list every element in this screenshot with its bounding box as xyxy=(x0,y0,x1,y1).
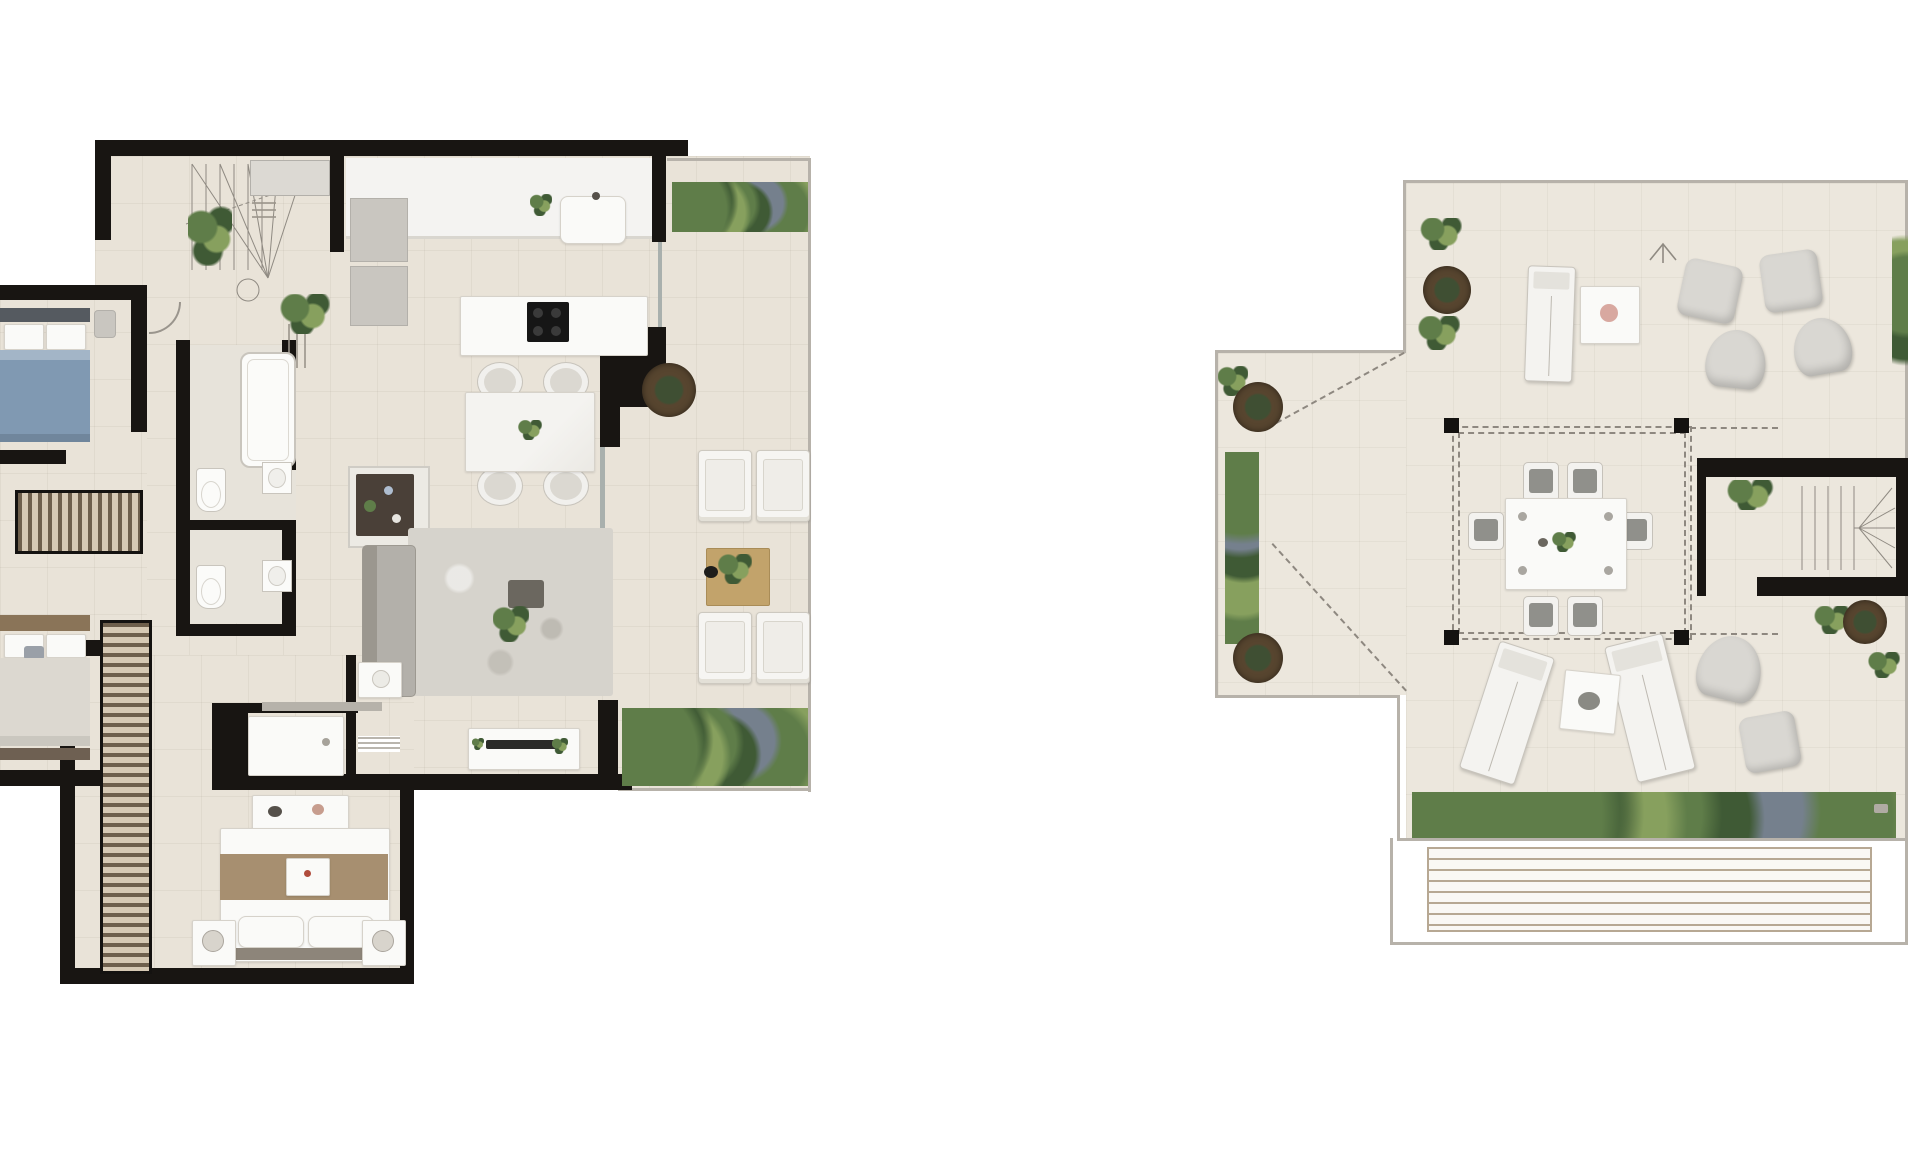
bean-bag-square xyxy=(1676,257,1745,326)
place-setting xyxy=(1604,512,1613,521)
stair-wall-left xyxy=(1697,458,1706,596)
table-decor xyxy=(1538,538,1548,547)
round-planter xyxy=(1423,266,1471,314)
roof-plant xyxy=(1868,652,1900,678)
bean-bag-square xyxy=(1758,248,1824,314)
place-setting xyxy=(1518,566,1527,575)
roof-dining-chair xyxy=(1567,596,1603,636)
parapet-wing-bottom xyxy=(1215,695,1400,698)
pergola-post xyxy=(1444,418,1459,433)
bean-bag-square xyxy=(1738,710,1803,775)
table-centerpiece xyxy=(1552,532,1576,552)
roof-terrace-plan xyxy=(0,0,1920,1166)
pergola-post xyxy=(1674,630,1689,645)
pergola-post xyxy=(1444,630,1459,645)
parapet-left-upper xyxy=(1403,180,1406,352)
stair-wall-top xyxy=(1697,458,1905,477)
stair-plant xyxy=(1726,480,1774,510)
table-decor xyxy=(1578,692,1600,710)
outer-bottom xyxy=(1390,942,1908,945)
dashed-beam xyxy=(1690,427,1778,429)
roof-staircase xyxy=(1796,480,1896,576)
place-setting xyxy=(1604,566,1613,575)
roof-hedge-right xyxy=(1892,210,1908,398)
floor-drain xyxy=(1874,804,1888,813)
roof-dining-chair xyxy=(1523,462,1559,502)
round-planter xyxy=(1843,600,1887,644)
stair-wall-bottom xyxy=(1757,577,1908,596)
stair-wall-right xyxy=(1896,458,1908,596)
parapet-step xyxy=(1397,695,1400,840)
parapet-wing-top xyxy=(1215,350,1406,353)
roof-plant xyxy=(1418,316,1460,350)
roof-dining-chair xyxy=(1567,462,1603,502)
place-setting xyxy=(1518,512,1527,521)
parapet-wing-left xyxy=(1215,350,1218,695)
parapet-top xyxy=(1403,180,1908,183)
north-arrow xyxy=(1646,238,1680,264)
round-planter xyxy=(1233,382,1283,432)
pergola-post xyxy=(1674,418,1689,433)
dashed-beam xyxy=(1690,633,1778,635)
roof-dining-chair xyxy=(1523,596,1559,636)
outer-left xyxy=(1390,838,1393,945)
timber-deck xyxy=(1427,847,1872,932)
roof-hedge-bottom xyxy=(1412,792,1896,838)
parapet-bottom xyxy=(1397,838,1908,841)
floorplan-canvas xyxy=(0,0,1920,1166)
decor-pink xyxy=(1600,304,1618,322)
round-planter xyxy=(1233,633,1283,683)
sun-lounger xyxy=(1524,265,1576,383)
roof-dining-chair xyxy=(1468,512,1504,550)
roof-plant xyxy=(1420,218,1462,250)
vertical-planter-strip xyxy=(1225,452,1259,644)
